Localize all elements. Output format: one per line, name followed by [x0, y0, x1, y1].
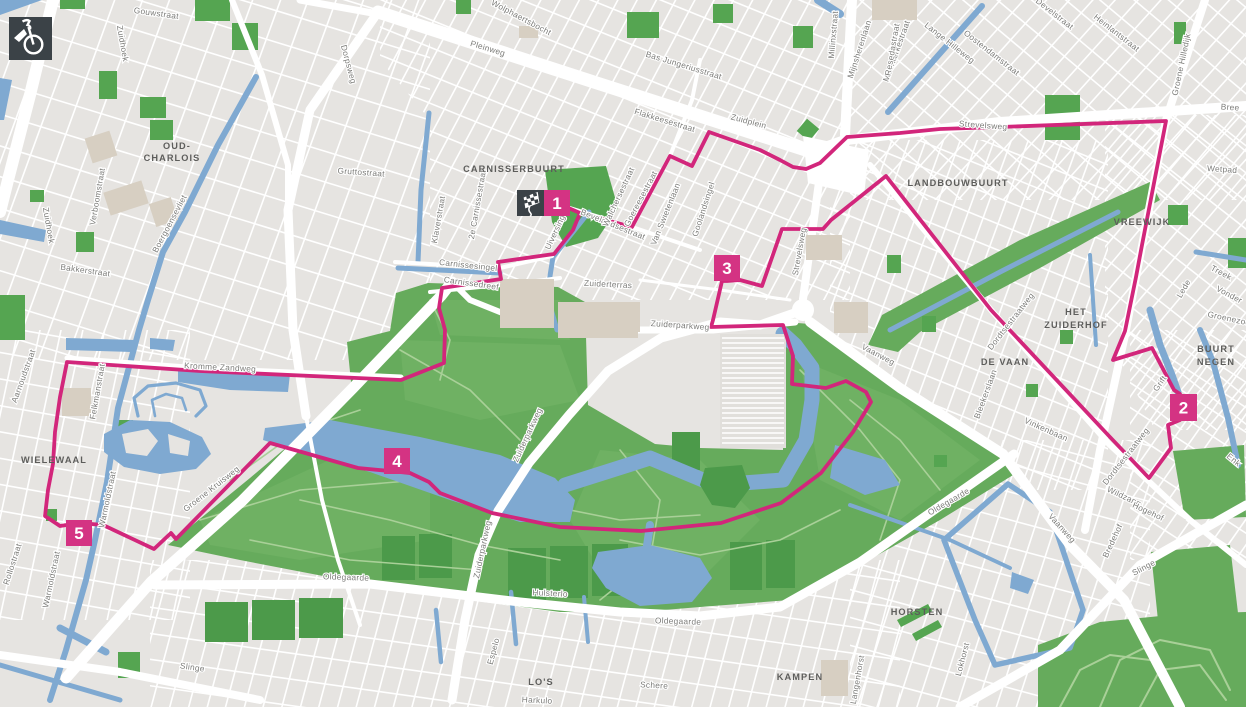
svg-text:HET: HET — [1065, 307, 1087, 317]
svg-text:Hulsterlo: Hulsterlo — [532, 587, 568, 599]
svg-text:ZUIDERHOF: ZUIDERHOF — [1044, 320, 1108, 330]
svg-text:2: 2 — [1179, 399, 1188, 418]
svg-text:Harkulo: Harkulo — [522, 694, 553, 706]
svg-text:LO'S: LO'S — [528, 677, 553, 687]
svg-text:5: 5 — [74, 524, 83, 543]
svg-text:Oldegaarde: Oldegaarde — [323, 571, 370, 583]
svg-text:CARNISSERBUURT: CARNISSERBUURT — [463, 164, 565, 174]
svg-text:DE VAAN: DE VAAN — [981, 357, 1029, 367]
svg-text:LANDBOUWBUURT: LANDBOUWBUURT — [907, 178, 1008, 188]
svg-text:KAMPEN: KAMPEN — [777, 672, 823, 682]
svg-text:4: 4 — [392, 452, 402, 471]
svg-text:Bree: Bree — [1221, 101, 1240, 112]
svg-text:VREEWIJK: VREEWIJK — [1114, 217, 1171, 227]
svg-text:Schere: Schere — [640, 679, 669, 690]
svg-text:BUURT: BUURT — [1197, 344, 1235, 354]
svg-text:Wetpad: Wetpad — [1207, 163, 1238, 175]
svg-text:WIELEWAAL: WIELEWAAL — [21, 455, 87, 465]
svg-text:OUD-: OUD- — [163, 141, 191, 151]
svg-text:HORSTEN: HORSTEN — [891, 607, 944, 617]
svg-text:CHARLOIS: CHARLOIS — [144, 153, 201, 163]
svg-text:3: 3 — [722, 259, 731, 278]
svg-text:NEGEN: NEGEN — [1197, 357, 1235, 367]
svg-text:1: 1 — [552, 194, 561, 213]
svg-text:Oldegaarde: Oldegaarde — [655, 615, 702, 627]
